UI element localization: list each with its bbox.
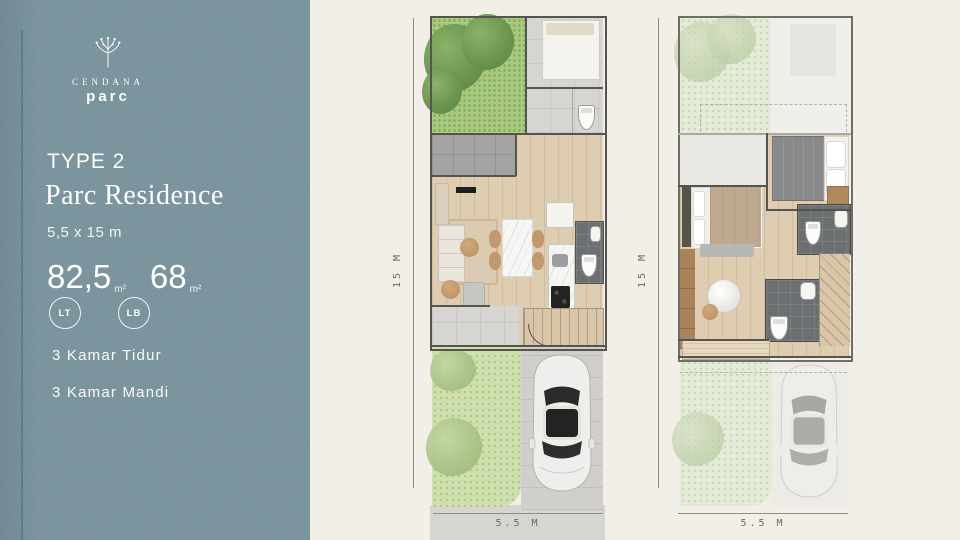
wall [430, 175, 516, 177]
feature-bathrooms: 3 Kamar Mandi [52, 384, 169, 401]
exterior-walls [430, 16, 607, 351]
area-lb: 68m² [150, 258, 201, 296]
sidebar-panel: CENDANA parc TYPE 2 Parc Residence 5,5 x… [0, 0, 310, 540]
faded-car-top-view [776, 363, 842, 499]
wall [678, 185, 767, 187]
wall [430, 133, 605, 135]
tree-logo-icon [88, 36, 128, 68]
wall [766, 133, 768, 211]
dimension-label-width-ground: 5.5 M [433, 518, 603, 529]
brand-logo: CENDANA parc [38, 36, 178, 105]
brand-subname: parc [38, 88, 178, 105]
floor-plan-upper [678, 16, 851, 510]
sidebar-edge-shade [0, 0, 40, 540]
wall [515, 135, 517, 176]
balcony-wall [678, 339, 769, 341]
dimension-label-width-upper: 5.5 M [678, 518, 848, 529]
badge-lb: LB [118, 297, 150, 329]
front-facade-wall [430, 345, 605, 347]
dimension-label-height-ground: 15 M [392, 228, 403, 288]
dimension-line-vertical-upper [658, 18, 659, 488]
dimension-label-height-upper: 15 M [637, 228, 648, 288]
dimension-line-horizontal-ground [433, 513, 603, 514]
area-lb-value: 68 [150, 258, 187, 295]
brand-name: CENDANA [38, 77, 178, 87]
slide: CENDANA parc TYPE 2 Parc Residence 5,5 x… [0, 0, 960, 540]
area-figures: 82,5m² 68m² [47, 258, 201, 296]
lot-size: 5,5 x 15 m [47, 224, 122, 241]
area-lt-value: 82,5 [47, 258, 111, 295]
dimension-line-horizontal-upper [678, 513, 848, 514]
area-lt: 82,5m² [47, 258, 126, 296]
dimension-line-vertical-ground [413, 18, 414, 488]
wall [678, 133, 851, 135]
car-top-view [528, 352, 596, 494]
floor-plan-ground [430, 16, 605, 510]
area-lb-unit: m² [190, 284, 202, 295]
page-title: Parc Residence [45, 180, 224, 212]
wall [525, 16, 527, 134]
feature-bedrooms: 3 Kamar Tidur [52, 347, 162, 364]
wall [526, 87, 603, 89]
wall [430, 305, 490, 307]
setback-dashed-line [680, 372, 847, 373]
type-label: TYPE 2 [47, 150, 125, 174]
wall [766, 209, 851, 211]
front-facade-wall [678, 356, 851, 358]
sidebar-accent-line [21, 30, 23, 540]
area-lt-unit: m² [114, 284, 126, 295]
badge-lt: LT [49, 297, 81, 329]
